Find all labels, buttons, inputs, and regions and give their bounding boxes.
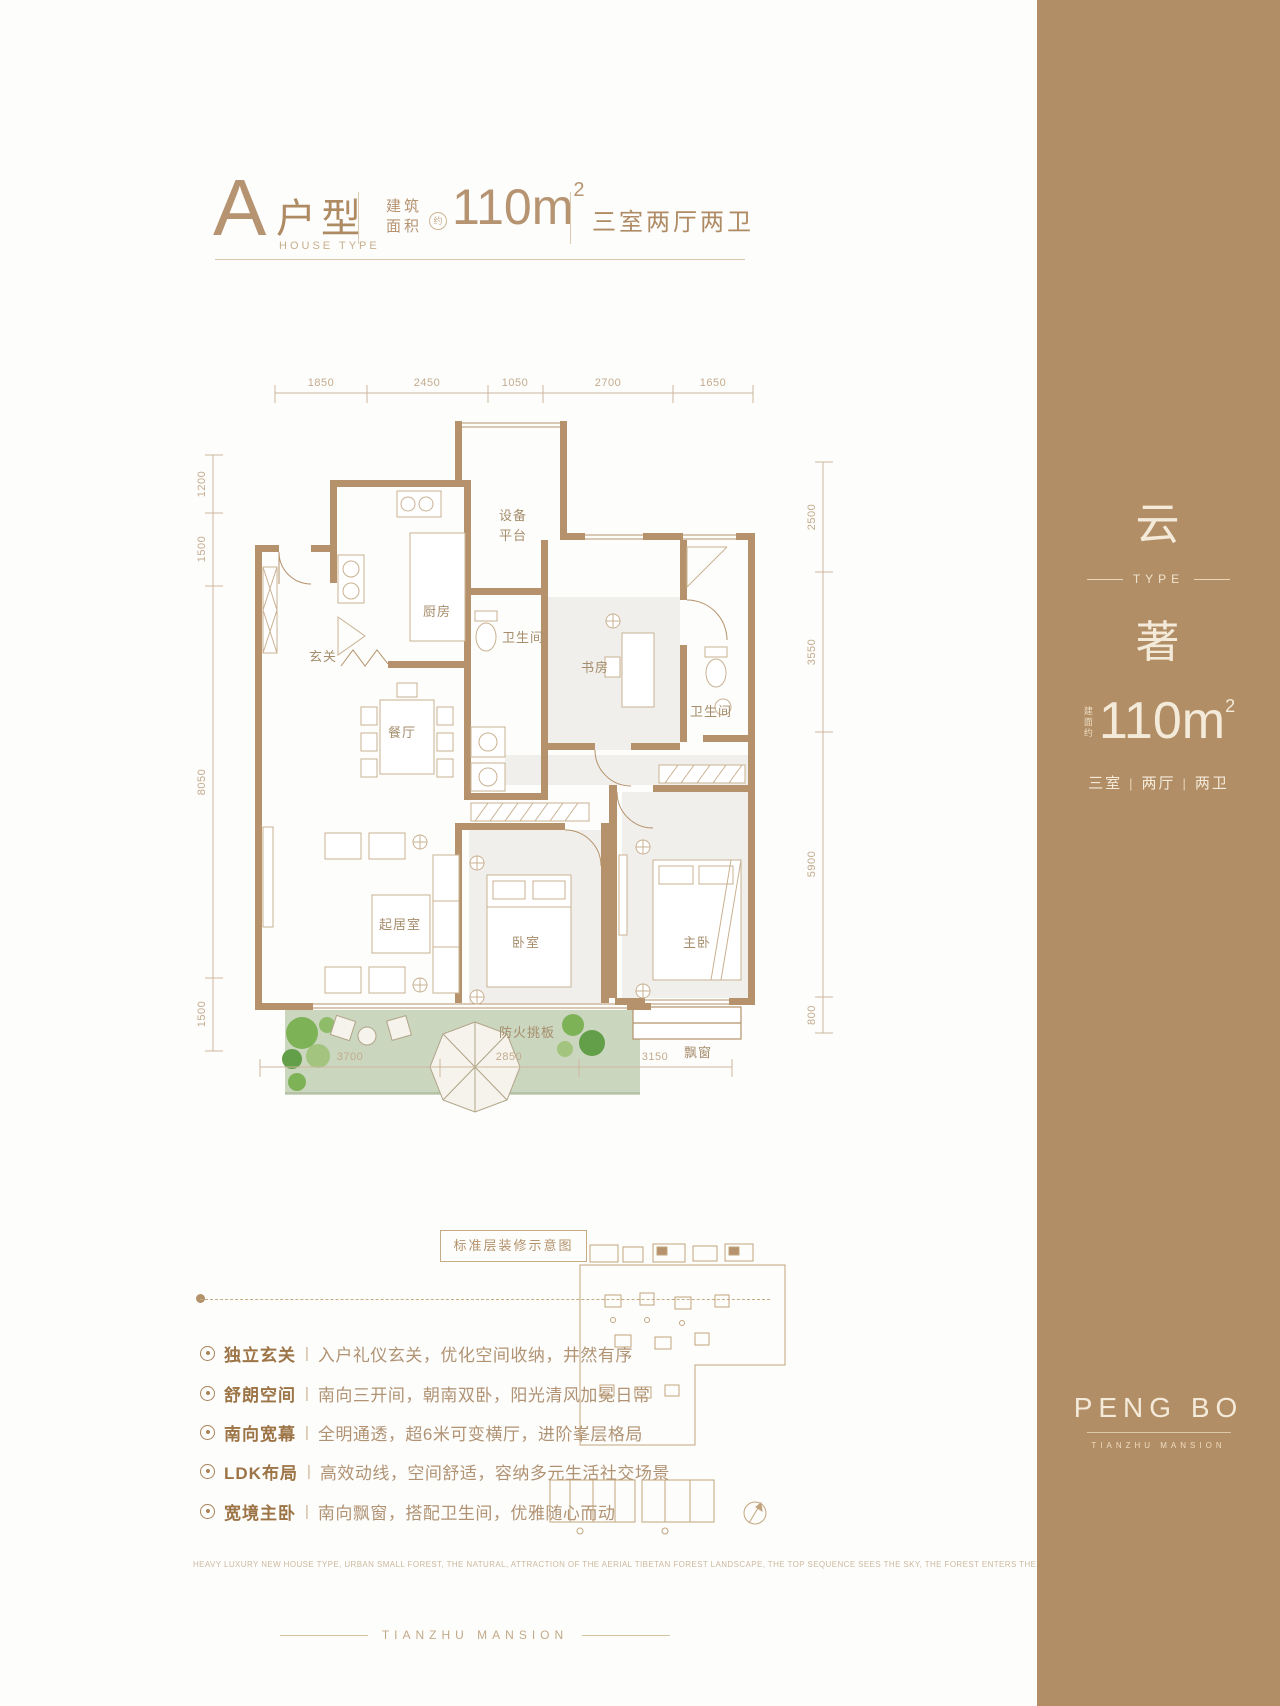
dim-right-1: 2500 xyxy=(806,504,818,530)
dim-right-3: 5900 xyxy=(806,851,818,877)
house-type-label: 户型 xyxy=(276,186,366,244)
type-line-left xyxy=(1087,579,1123,580)
feature-bullet-icon xyxy=(200,1386,215,1401)
dim-left-4: 1500 xyxy=(196,1001,208,1027)
dim-left-2: 1500 xyxy=(196,536,208,562)
room-label-equipment-2: 平台 xyxy=(499,528,527,543)
room-label-study: 书房 xyxy=(581,660,609,675)
north-arrow-icon xyxy=(744,1502,766,1524)
sidebar-layout: 三室|两厅|两卫 xyxy=(1037,772,1280,793)
dim-bottom-3: 3150 xyxy=(642,1051,668,1063)
room-label-kitchen: 厨房 xyxy=(423,604,451,619)
washer-icon xyxy=(479,768,497,786)
house-type-sub: HOUSE TYPE xyxy=(279,240,380,252)
dim-top-5: 1650 xyxy=(700,377,726,389)
room-label-entry: 玄关 xyxy=(309,649,337,664)
layout-sep: | xyxy=(1129,776,1134,791)
layout-halls: 两厅 xyxy=(1141,775,1175,792)
sidebar-area-value: 110m xyxy=(1099,698,1225,745)
area-label: 建筑 面积 xyxy=(386,197,422,237)
tree-icon xyxy=(282,1049,302,1069)
sidebar-brand-sub: TIANZHU MANSION xyxy=(1037,1441,1280,1450)
room-label-fire-board: 防火挑板 xyxy=(499,1025,555,1040)
balcony xyxy=(282,1010,640,1112)
footer-brand: TIANZHU MANSION xyxy=(280,1628,670,1642)
feature-title: LDK布局 xyxy=(224,1459,298,1484)
room-label-bay-window: 飘窗 xyxy=(684,1045,712,1060)
english-tagline: HEAVY LUXURY NEW HOUSE TYPE, URBAN SMALL… xyxy=(193,1560,1075,1569)
header-divider-1 xyxy=(358,192,359,244)
balcony-table xyxy=(358,1027,376,1045)
sidebar-area-prefix: 建面约 xyxy=(1082,706,1095,739)
approx-badge: 约 xyxy=(429,212,447,230)
area-label-line1: 建筑 xyxy=(386,197,422,217)
feature-bullet-icon xyxy=(200,1425,215,1440)
dim-bottom-1: 3700 xyxy=(337,1051,363,1063)
room-label-bath-1: 卫生间 xyxy=(502,630,544,645)
bay-window xyxy=(633,1007,741,1039)
dim-top-1: 1850 xyxy=(308,377,334,389)
feature-bullet-icon xyxy=(200,1346,215,1361)
sofa xyxy=(433,855,459,993)
area-value: 110m2 xyxy=(452,180,585,232)
feature-title: 舒朗空间 xyxy=(224,1381,296,1406)
feature-bullet-icon xyxy=(200,1464,215,1479)
dim-top-4: 2700 xyxy=(595,377,621,389)
floorplan-drawing: 玄关 厨房 设备 平台 卫生间 书房 卫生间 餐厅 起居室 卧室 主卧 飘窗 防… xyxy=(175,355,855,1145)
sidebar-type-row: TYPE xyxy=(1037,572,1280,586)
feature-separator: | xyxy=(307,1463,311,1480)
room-label-bedroom: 卧室 xyxy=(512,935,540,950)
footer-line-left xyxy=(280,1635,368,1636)
layout-sep: | xyxy=(1183,776,1188,791)
type-line-right xyxy=(1194,579,1230,580)
site-plan xyxy=(545,1235,795,1535)
room-label-equipment-1: 设备 xyxy=(499,508,527,523)
dim-top-3: 1050 xyxy=(502,377,528,389)
feature-separator: | xyxy=(305,1345,309,1362)
kitchen-island xyxy=(410,533,465,641)
area-number: 110m xyxy=(452,179,573,235)
feature-separator: | xyxy=(305,1385,309,1402)
sidebar-area-sup: 2 xyxy=(1225,696,1235,717)
sidebar-area: 建面约 110m 2 xyxy=(1037,696,1280,745)
feature-bullet-icon xyxy=(200,1504,215,1519)
tree-icon xyxy=(557,1041,573,1057)
dim-left-1: 1200 xyxy=(196,471,208,497)
feature-separator: | xyxy=(305,1424,309,1441)
dim-right-2: 3550 xyxy=(806,639,818,665)
feature-separator: | xyxy=(305,1503,309,1520)
tree-icon xyxy=(286,1017,318,1049)
dim-top-2: 2450 xyxy=(414,377,440,389)
tree-icon xyxy=(562,1014,584,1036)
toilet-icon xyxy=(705,647,727,657)
dim-bottom-2: 2850 xyxy=(496,1051,522,1063)
header-divider-2 xyxy=(570,192,571,244)
house-type-letter: A xyxy=(213,168,266,248)
header-underline xyxy=(215,259,745,260)
sidebar-brand: PENG BO xyxy=(1037,1392,1280,1424)
tree-icon xyxy=(288,1073,306,1091)
layout-rooms: 三室 xyxy=(1088,775,1122,792)
room-label-dining: 餐厅 xyxy=(388,725,416,740)
sidebar-type-label: TYPE xyxy=(1133,572,1184,586)
tv-cabinet xyxy=(263,827,273,927)
dim-right-4: 800 xyxy=(806,1005,818,1025)
feature-title: 独立玄关 xyxy=(224,1341,296,1366)
room-label-living: 起居室 xyxy=(379,917,421,932)
feature-title: 南向宽幕 xyxy=(224,1420,296,1445)
area-sup: 2 xyxy=(573,179,584,201)
floorplan-poster: A 户型 HOUSE TYPE 建筑 面积 约 110m2 三室两厅两卫 xyxy=(0,0,1280,1706)
area-label-line2: 面积 xyxy=(386,217,422,237)
dim-left-3: 8050 xyxy=(196,769,208,795)
footer-line-right xyxy=(582,1635,670,1636)
sidebar-type-char-bottom: 著 xyxy=(1037,606,1280,670)
rooms-summary: 三室两厅两卫 xyxy=(592,202,754,237)
sidebar-brand-line xyxy=(1087,1432,1231,1433)
room-label-master: 主卧 xyxy=(683,935,711,950)
tree-icon xyxy=(306,1044,330,1068)
sidebar: 云 TYPE 著 建面约 110m 2 三室|两厅|两卫 PENG BO TIA… xyxy=(1037,0,1280,1706)
toilet-icon xyxy=(475,611,497,621)
footer-brand-text: TIANZHU MANSION xyxy=(382,1628,568,1642)
sidebar-type-char-top: 云 xyxy=(1037,488,1280,552)
desk xyxy=(622,633,654,707)
layout-baths: 两卫 xyxy=(1195,775,1229,792)
feature-title: 宽境主卧 xyxy=(224,1499,296,1524)
room-label-bath-2: 卫生间 xyxy=(690,704,732,719)
tree-icon xyxy=(579,1030,605,1056)
